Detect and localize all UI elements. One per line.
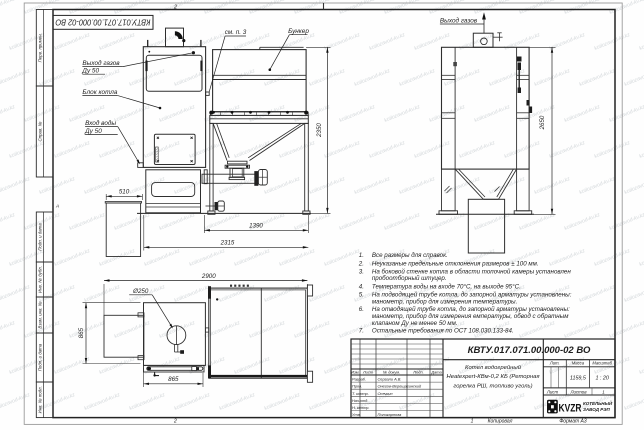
svg-text:Лист: Лист <box>362 369 374 374</box>
svg-text:2: 2 <box>173 418 177 424</box>
svg-text:Выход газов: Выход газов <box>82 59 120 67</box>
svg-text:КВТУ.017.071.00.000-02 ВО: КВТУ.017.071.00.000-02 ВО <box>468 345 591 356</box>
svg-text:Формат А3: Формат А3 <box>559 419 587 425</box>
svg-text:№ докум.: № докум. <box>383 369 400 374</box>
svg-text:Ø250: Ø250 <box>132 288 149 295</box>
svg-text:манометр, прибор для измерения: манометр, прибор для измерения температу… <box>372 298 517 305</box>
svg-text:5.: 5. <box>359 291 364 298</box>
svg-text:4.: 4. <box>359 284 364 291</box>
svg-text:Изм.: Изм. <box>351 369 359 374</box>
svg-text:Неуказаные предельные отклонен: Неуказаные предельные отклонения размеро… <box>372 261 539 268</box>
svg-text:Утв.: Утв. <box>352 412 361 417</box>
svg-text:Разраб.: Разраб. <box>352 377 366 382</box>
svg-text:Дата: Дата <box>430 369 442 374</box>
svg-text:6.: 6. <box>359 306 364 313</box>
svg-text:Пров.: Пров. <box>352 384 362 389</box>
svg-text:Масштаб: Масштаб <box>592 361 612 366</box>
svg-text:Инв. № дубл.: Инв. № дубл. <box>37 266 42 293</box>
svg-text:клапаном Ду не менее 50 мм.: клапаном Ду не менее 50 мм. <box>372 320 458 327</box>
svg-text:Ду 50: Ду 50 <box>81 68 99 75</box>
svg-text:КВТУ.017.071.00.000-02 ВО: КВТУ.017.071.00.000-02 ВО <box>55 17 150 27</box>
svg-text:Справ. №: Справ. № <box>37 121 42 141</box>
svg-text:Копировал: Копировал <box>488 419 513 425</box>
svg-text:Температура воды на входе 70°С: Температура воды на входе 70°С, на выход… <box>372 284 521 291</box>
svg-text:2350: 2350 <box>316 123 323 138</box>
svg-text:Все размеры для справок.: Все размеры для справок. <box>372 252 448 259</box>
svg-text:Котел водогрейный: Котел водогрейный <box>465 364 522 371</box>
svg-text:1390: 1390 <box>249 223 263 230</box>
svg-text:Нач.отд.: Нач.отд. <box>352 398 368 403</box>
svg-text:KVZR: KVZR <box>559 402 582 414</box>
svg-text:А: А <box>55 204 59 209</box>
svg-text:Масса: Масса <box>572 361 585 366</box>
svg-text:2650: 2650 <box>539 115 546 130</box>
svg-text:Поликарпова: Поликарпова <box>378 412 403 417</box>
svg-text:Подп.: Подп. <box>413 369 423 374</box>
svg-text:510: 510 <box>119 189 130 196</box>
svg-text:КОТЕЛЬНЫЙ: КОТЕЛЬНЫЙ <box>583 399 613 406</box>
svg-text:1159,5: 1159,5 <box>570 375 587 381</box>
svg-text:Осечкин: Осечкин <box>378 391 394 396</box>
svg-text:Блок котла: Блок котла <box>82 89 117 96</box>
svg-text:см. п. 3: см. п. 3 <box>225 29 247 36</box>
svg-text:1.: 1. <box>359 252 364 259</box>
svg-text:На отводящей трубе котла, до з: На отводящей трубе котла, до запорной ар… <box>372 306 570 313</box>
svg-text:2315: 2315 <box>220 240 235 247</box>
svg-text:Вход воды: Вход воды <box>85 119 116 127</box>
svg-text:Взам. инв. №: Взам. инв. № <box>37 301 42 328</box>
svg-text:Онегов-Верещагинский: Онегов-Верещагинский <box>378 384 422 389</box>
svg-text:Подп. и дата: Подп. и дата <box>37 343 42 371</box>
svg-text:Heatexpert-КВм-0,2 КБ (Реторна: Heatexpert-КВм-0,2 КБ (Реторная <box>446 374 540 380</box>
svg-text:Лит.: Лит. <box>549 361 560 366</box>
svg-text:Остальные требования по ОСТ 10: Остальные требования по ОСТ 108.030.133-… <box>372 328 514 335</box>
svg-text:Листов: Листов <box>570 390 588 395</box>
svg-text:1 : 20: 1 : 20 <box>595 375 609 381</box>
svg-text:7.: 7. <box>359 328 364 335</box>
svg-text:2: 2 <box>173 5 177 11</box>
svg-text:Инв. № подл.: Инв. № подл. <box>37 386 42 413</box>
svg-text:3.: 3. <box>359 268 364 275</box>
svg-text:Выход газов: Выход газов <box>440 16 478 24</box>
svg-text:2.: 2. <box>358 261 364 268</box>
svg-text:2900: 2900 <box>201 273 216 280</box>
svg-text:Ду 50: Ду 50 <box>84 128 102 135</box>
svg-text:Бункер: Бункер <box>288 28 309 35</box>
svg-text:горелка РШ, топливо уголь): горелка РШ, топливо уголь) <box>453 383 532 389</box>
svg-text:Сергали А.В.: Сергали А.В. <box>378 377 402 382</box>
svg-text:Перв. примен.: Перв. примен. <box>37 33 42 62</box>
svg-text:Н. контр.: Н. контр. <box>352 405 370 410</box>
svg-text:865: 865 <box>168 376 179 383</box>
svg-text:Т. контр.: Т. контр. <box>352 391 369 396</box>
svg-text:1: 1 <box>471 419 474 425</box>
svg-text:Лист: Лист <box>546 390 559 395</box>
svg-text:Подп. и дата: Подп. и дата <box>37 223 42 251</box>
svg-text:ЗАВОД РЭП: ЗАВОД РЭП <box>583 407 610 412</box>
svg-text:пробоотборный штуцер.: пробоотборный штуцер. <box>372 275 447 282</box>
svg-text:865: 865 <box>78 327 85 338</box>
